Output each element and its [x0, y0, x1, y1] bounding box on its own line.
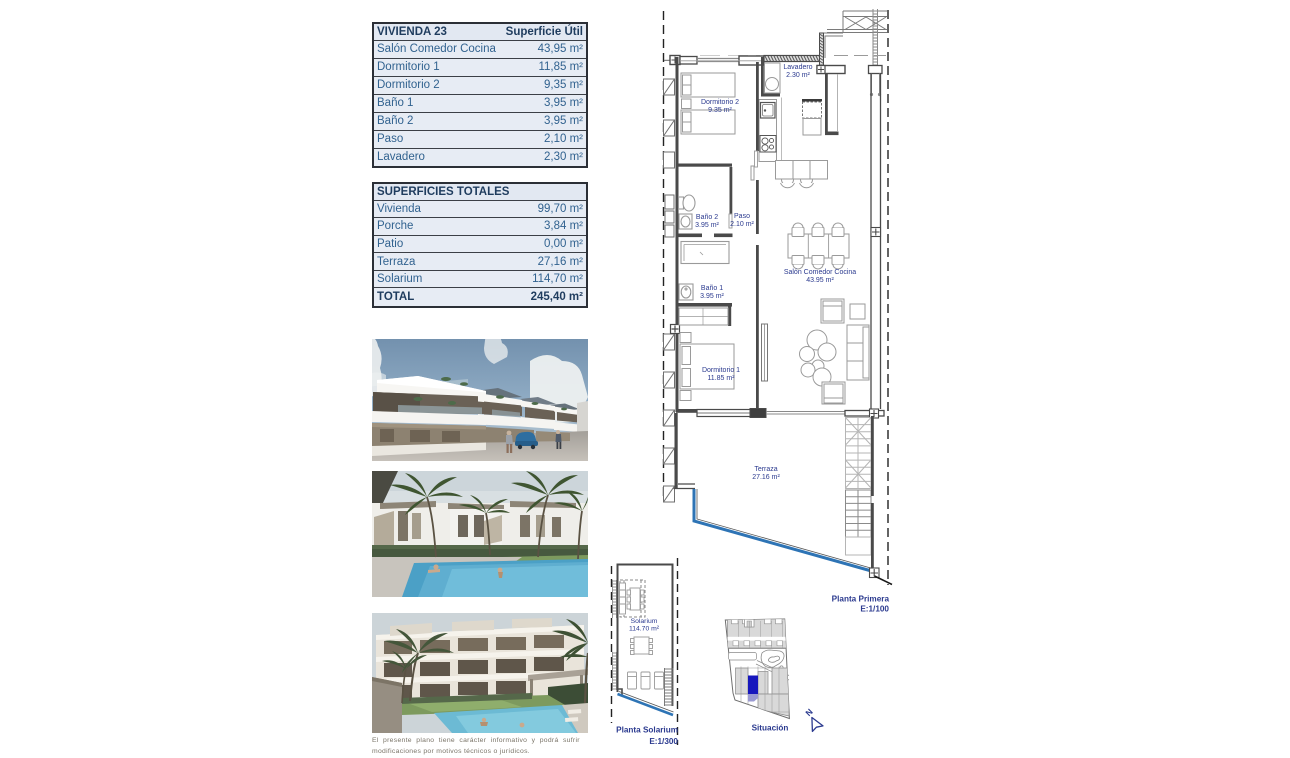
svg-text:E:1/100: E:1/100: [860, 605, 889, 614]
svg-text:Paso: Paso: [734, 213, 750, 220]
svg-text:Dormitorio 1: Dormitorio 1: [702, 367, 740, 374]
svg-text:Solarium: Solarium: [631, 618, 658, 625]
svg-text:114.70 m²: 114.70 m²: [629, 626, 660, 633]
svg-text:Lavadero: Lavadero: [783, 64, 812, 71]
svg-text:Baño 1: Baño 1: [701, 285, 723, 292]
svg-text:11.85 m²: 11.85 m²: [707, 375, 735, 382]
svg-text:2.30 m²: 2.30 m²: [786, 72, 810, 79]
svg-text:2.10 m²: 2.10 m²: [730, 221, 754, 228]
svg-text:27.16 m²: 27.16 m²: [752, 474, 780, 481]
svg-text:9.35 m²: 9.35 m²: [708, 107, 732, 114]
svg-text:3.95 m²: 3.95 m²: [700, 293, 724, 300]
svg-text:Planta Solarium: Planta Solarium: [616, 726, 678, 735]
svg-text:Planta Primera: Planta Primera: [832, 595, 890, 604]
svg-text:Terraza: Terraza: [754, 466, 777, 473]
svg-text:Salón Comedor Cocina: Salón Comedor Cocina: [784, 269, 856, 276]
svg-text:Dormitorio 2: Dormitorio 2: [701, 99, 739, 106]
svg-text:Situación: Situación: [752, 724, 789, 733]
svg-text:E:1/300: E:1/300: [649, 737, 678, 746]
svg-text:3.95 m²: 3.95 m²: [695, 222, 719, 229]
svg-text:N: N: [803, 707, 814, 718]
svg-text:43.95 m²: 43.95 m²: [806, 277, 834, 284]
svg-text:Baño 2: Baño 2: [696, 214, 718, 221]
